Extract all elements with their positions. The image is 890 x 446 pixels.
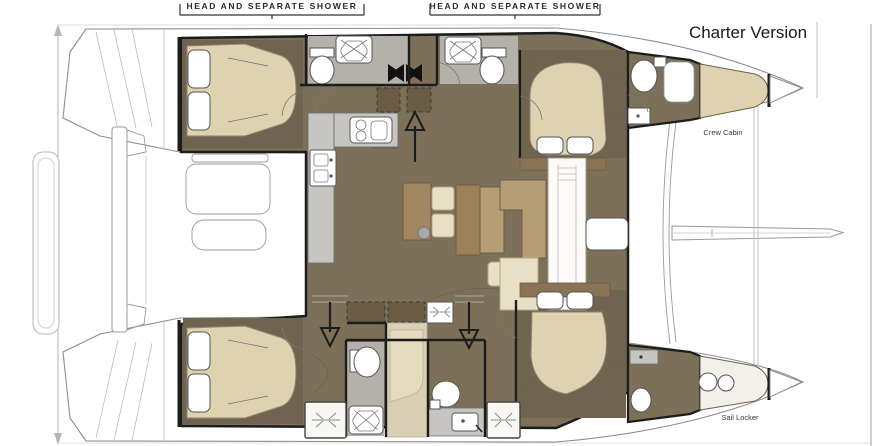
stbd-aft-head (347, 342, 384, 436)
head-shower-callouts: HEAD AND SEPARATE SHOWER HEAD AND SEPARA… (180, 1, 600, 19)
floor-plan-svg: Bmax = 8000 HEAD AND SEPARATE SHOWER HEA… (0, 0, 890, 446)
locker (407, 88, 431, 112)
seat-cushion (432, 187, 454, 210)
toilet-icon (354, 347, 380, 377)
toilet-icon (631, 60, 657, 92)
sail-locker-label: Sail Locker (721, 413, 759, 422)
sofa (456, 185, 480, 255)
aft-crossbeam (112, 127, 127, 332)
locker (388, 302, 425, 322)
floor-plan-page: Bmax = 8000 HEAD AND SEPARATE SHOWER HEA… (0, 0, 890, 446)
locker (377, 88, 400, 112)
pillow (567, 137, 593, 154)
convertible-panel (427, 302, 453, 323)
port-aft-cabin-bed (187, 44, 296, 136)
toilet-icon (480, 56, 504, 84)
cockpit-aft-bench (192, 154, 268, 162)
toilet-icon (631, 388, 651, 412)
pillow (537, 292, 563, 309)
pillow (537, 137, 563, 154)
sink-icon (310, 150, 336, 186)
pillow (188, 374, 210, 412)
stove-icon (350, 117, 392, 143)
crew-cabin-label: Crew Cabin (703, 128, 742, 137)
pillow (188, 50, 210, 88)
sink-icon (452, 413, 478, 431)
aft-cockpit (186, 154, 270, 250)
toilet-icon (310, 56, 334, 84)
cockpit-table (186, 164, 270, 214)
deck-hatch (487, 402, 520, 438)
deck-hatch (305, 402, 346, 438)
dim-arrow-up-icon (54, 24, 62, 36)
foredeck-door (586, 218, 628, 250)
page-title: Charter Version (689, 23, 807, 42)
port-fwd-head (437, 36, 518, 85)
locker (347, 302, 385, 322)
pillow (188, 332, 210, 370)
seat-cushion (432, 214, 454, 237)
pillow (567, 292, 593, 309)
davit-bar (33, 152, 59, 334)
stool (418, 227, 430, 239)
head-shower-label-aft: HEAD AND SEPARATE SHOWER (187, 1, 358, 11)
cockpit-bench (192, 220, 266, 250)
headboard (520, 283, 610, 297)
stbd-aft-cabin-bed (187, 326, 296, 418)
head-shower-label-forward: HEAD AND SEPARATE SHOWER (430, 1, 601, 11)
pillow (188, 92, 210, 130)
